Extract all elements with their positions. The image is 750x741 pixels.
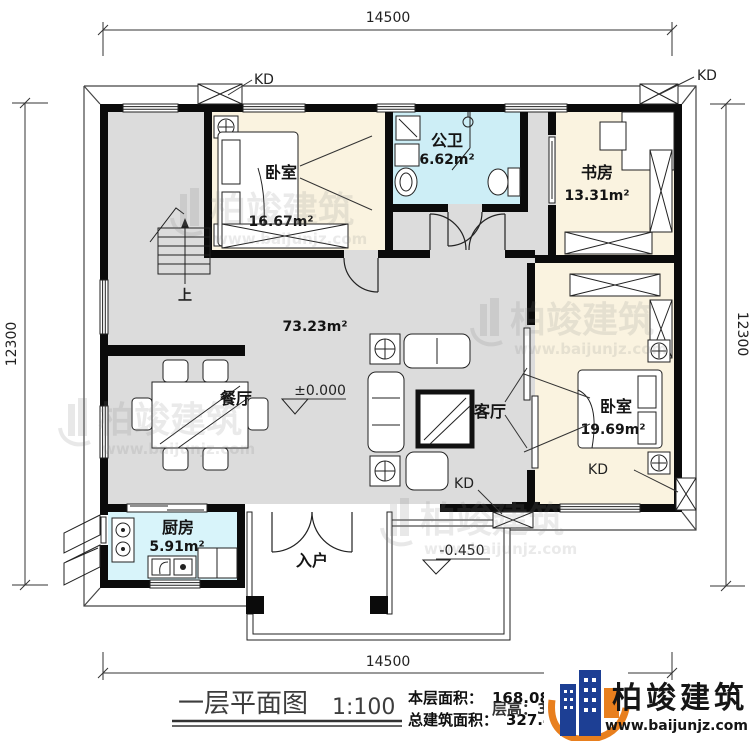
kd-flue-box (198, 84, 242, 104)
window (243, 104, 305, 112)
stairs-up-label: 上 (178, 288, 192, 304)
plan-title: 一层平面图 (178, 689, 308, 719)
kd-label: KD (588, 462, 608, 478)
floor-area-label: 本层面积： (408, 689, 483, 707)
bedroom2-area: 19.69m² (580, 422, 645, 438)
level-main-value: ±0.000 (294, 383, 346, 399)
side-steps (64, 515, 100, 585)
brand-logo: 柏竣建筑 www.baijunjz.com (544, 664, 748, 741)
dimension-left: 12300 (4, 98, 48, 590)
bedroom2-label: 卧室 (600, 397, 632, 416)
dim-left-value: 12300 (4, 322, 20, 367)
kd-flue-box (640, 84, 678, 104)
window (377, 104, 415, 112)
kitchen-sliding-door (127, 504, 207, 512)
dim-right-value: 12300 (734, 312, 750, 357)
watermark (382, 498, 577, 558)
kitchen-area: 5.91m² (149, 539, 204, 555)
kd-label: KD (697, 68, 717, 84)
stove (112, 518, 134, 562)
watermark (60, 398, 255, 458)
open-area-label: 73.23m² (282, 319, 347, 335)
kd-label: KD (454, 476, 474, 492)
sofa (368, 372, 404, 452)
window (123, 104, 178, 112)
kitchen-side-door (100, 515, 108, 545)
entry-label: 入户 (296, 551, 328, 570)
coffee-table (418, 392, 472, 446)
title-block: 一层平面图 1:100 本层面积： 168.08m² 总建筑面积： 327.46… (172, 689, 586, 729)
study-label: 书房 (581, 163, 613, 182)
plan-scale: 1:100 (332, 695, 395, 720)
toilet (488, 168, 520, 196)
dimension-right: 12300 (710, 99, 750, 591)
bathroom-area: 6.62m² (419, 152, 474, 168)
armchair (406, 452, 448, 490)
bedroom1-label: 卧室 (265, 163, 297, 182)
kd-flue-box (676, 478, 696, 510)
living-label: 客厅 (474, 402, 506, 421)
dim-top-value: 14500 (366, 10, 411, 26)
study-sliding-door (549, 137, 555, 203)
floor-plan-svg: 柏竣建筑 www.baijunjz.com (0, 0, 750, 741)
washbasin (395, 168, 417, 196)
brand-name: 柏竣建筑 (612, 681, 748, 716)
dim-bottom-value: 14500 (366, 654, 411, 670)
kitchen-label: 厨房 (162, 518, 194, 537)
brand-website: www.baijunjz.com (605, 718, 748, 734)
floor-plan-page: 柏竣建筑 www.baijunjz.com (0, 0, 750, 741)
window (505, 104, 567, 112)
monitor (600, 122, 626, 150)
bathroom-label: 公卫 (431, 131, 463, 150)
window (560, 504, 640, 512)
total-area-label: 总建筑面积： (408, 711, 498, 729)
washbasin-cabinet (395, 144, 419, 166)
study-area: 13.31m² (564, 188, 629, 204)
kd-label: KD (254, 72, 274, 88)
dimension-top: 14500 (98, 10, 677, 56)
window (100, 280, 108, 334)
window (150, 580, 200, 588)
